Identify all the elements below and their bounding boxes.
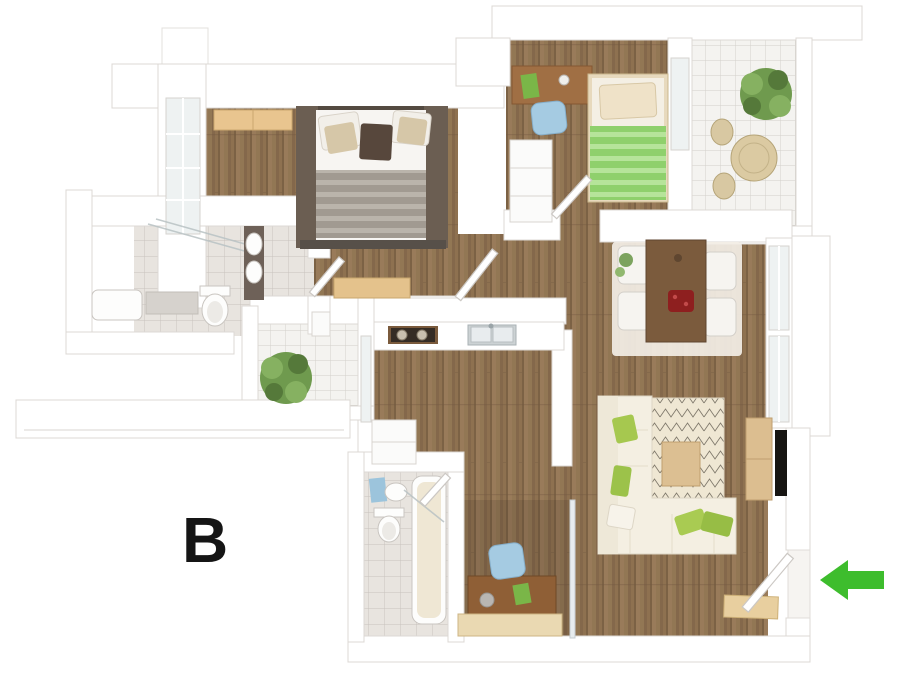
bed-footboard — [300, 240, 446, 249]
kids-dresser — [510, 140, 552, 222]
rattan-chair-1 — [711, 119, 733, 145]
dining-north-wall — [600, 210, 792, 242]
balcony-parapet-east — [796, 38, 812, 238]
tv-screen — [775, 430, 787, 496]
unit-label: B — [182, 504, 228, 576]
vanity-sink-2 — [246, 261, 262, 283]
kids-west-wall — [456, 38, 510, 86]
floor-plan-render: B — [0, 0, 900, 693]
bed-rail-left — [296, 106, 318, 248]
sink-basin-1 — [471, 327, 491, 342]
red-bowl — [668, 290, 694, 312]
roof-corner-slab — [162, 28, 208, 68]
desk-cup — [559, 75, 569, 85]
pillow-dark — [359, 123, 393, 161]
table-decor — [674, 254, 682, 262]
loggia-shelf — [312, 312, 330, 336]
bowl-detail-2 — [684, 302, 688, 306]
west-balcony-parapet — [16, 400, 350, 438]
bowl-detail-1 — [673, 295, 677, 299]
dining-area — [612, 240, 742, 356]
kids-pillow — [599, 83, 657, 120]
vanity-sink-1 — [246, 233, 262, 255]
bathroom1-west-wall — [66, 190, 92, 348]
bedroom-window — [166, 98, 200, 234]
kids-blanket-green — [590, 126, 666, 200]
dresser-south — [334, 278, 410, 298]
washbasin — [385, 483, 407, 501]
pillow-beige-2 — [396, 116, 427, 146]
balcony-plant — [740, 68, 792, 120]
glass-partition — [570, 500, 575, 638]
toilet-1 — [200, 286, 230, 326]
rattan-table — [731, 135, 777, 181]
white-pillow — [606, 504, 635, 530]
kids-room — [510, 66, 668, 222]
kitchen-hall-floor — [464, 462, 556, 506]
bathroom2-west-wall — [348, 452, 364, 642]
balcony-floor — [690, 38, 798, 230]
office-chair-blue — [488, 542, 526, 580]
burner-1 — [397, 330, 407, 340]
dining-chair-3 — [704, 252, 736, 290]
sink-basin-2 — [493, 327, 513, 342]
kitchen-window — [361, 336, 371, 422]
bath-counter — [146, 292, 198, 314]
single-bed — [588, 74, 668, 202]
pillow-beige — [324, 122, 358, 155]
bathroom1-south-wall — [66, 332, 234, 354]
double-bed — [296, 106, 448, 249]
living-east-wall — [786, 428, 810, 550]
desk-lamp — [480, 593, 494, 607]
kids-chair-blue — [530, 100, 567, 135]
notebook-green — [520, 73, 539, 99]
bathtub-small — [92, 290, 142, 320]
coffee-table — [662, 442, 700, 486]
kitchen-back-wall — [360, 298, 566, 324]
north-roof-band — [492, 6, 862, 40]
dining-chair-4 — [704, 298, 736, 336]
window-bench — [458, 614, 562, 636]
balcony-door-glass — [671, 58, 689, 150]
dining-chair-2 — [618, 292, 650, 330]
burner-2 — [417, 330, 427, 340]
bed-blanket — [316, 170, 426, 238]
office-notebook — [512, 583, 531, 605]
east-balcony-parapet — [792, 236, 830, 436]
south-wall — [348, 636, 810, 662]
loggia-west-wall — [242, 306, 258, 412]
entrance-arrow — [820, 560, 884, 600]
rattan-chair-2 — [713, 173, 735, 199]
towel-blue — [369, 477, 387, 503]
faucet — [489, 324, 494, 329]
